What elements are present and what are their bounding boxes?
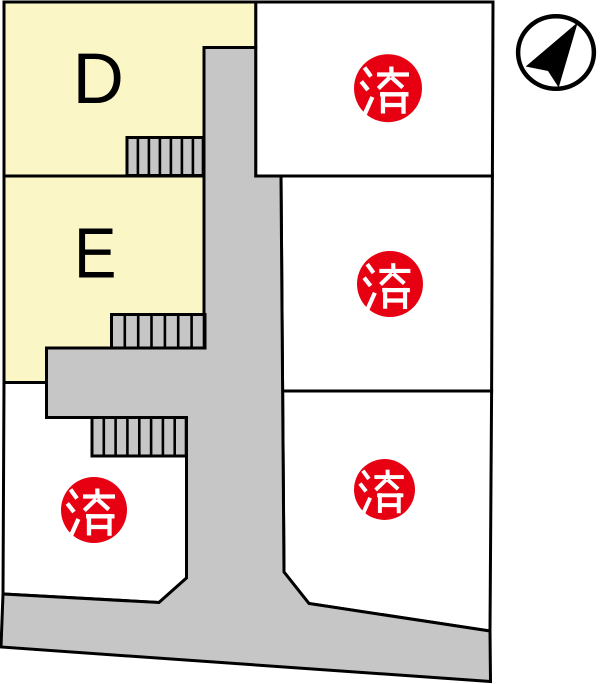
svg-text:D: D	[73, 40, 124, 119]
svg-text:E: E	[74, 214, 117, 293]
